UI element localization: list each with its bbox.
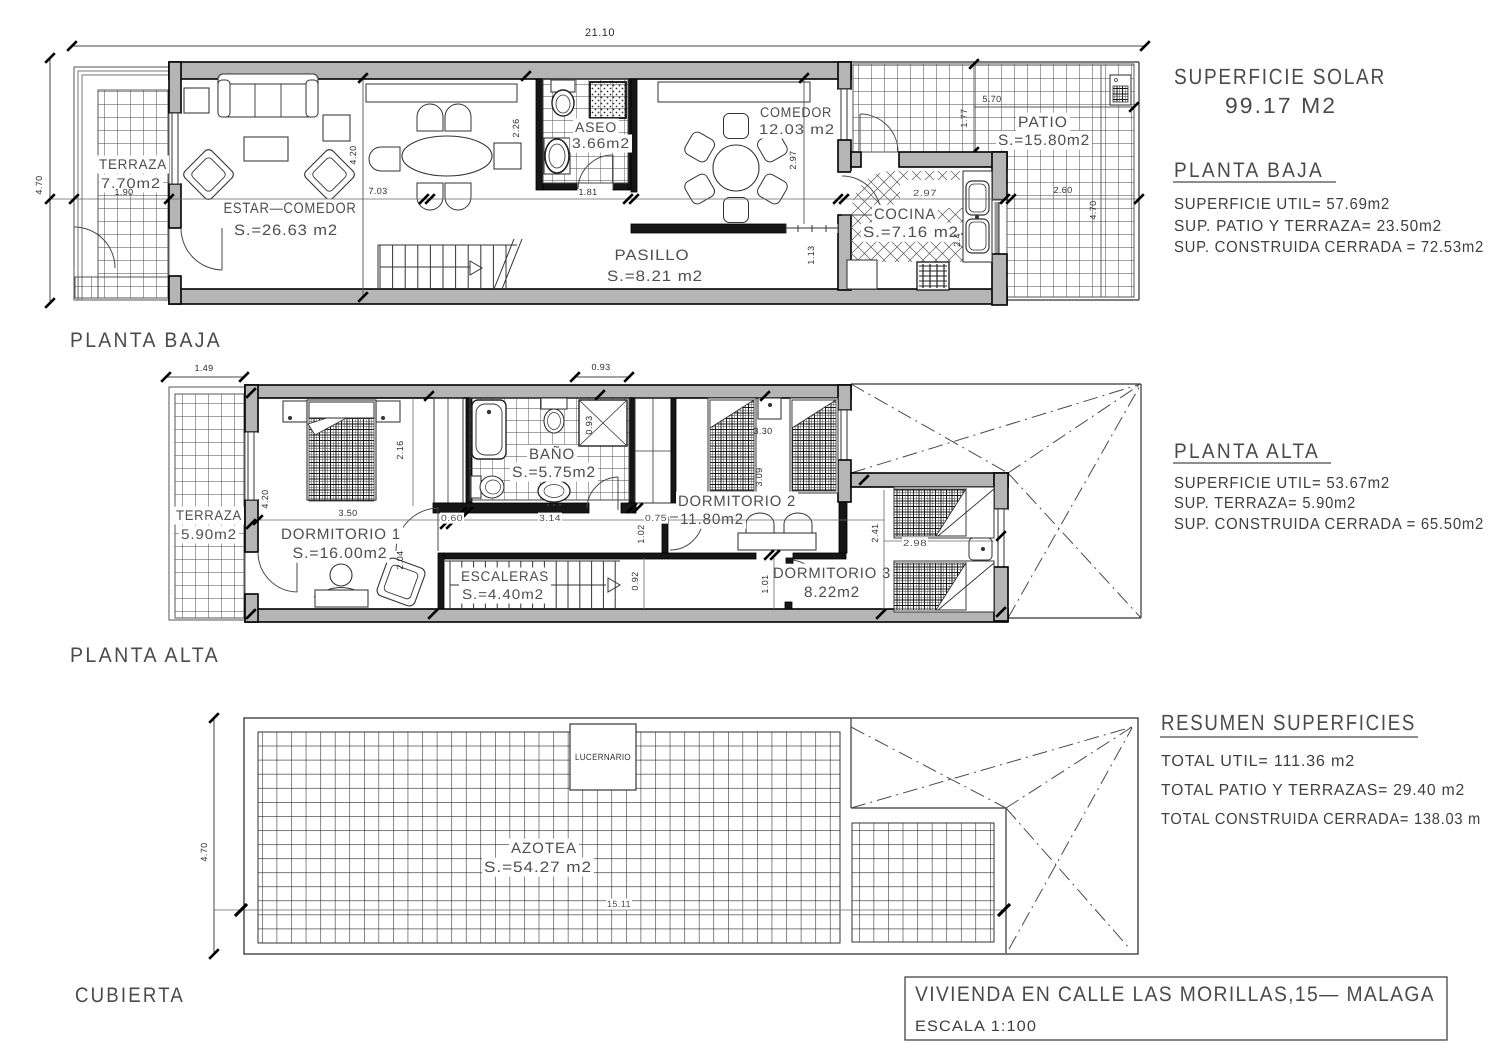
svg-text:4.70: 4.70 [1088, 200, 1098, 219]
svg-text:3.66m2: 3.66m2 [572, 135, 630, 151]
svg-text:SUP. CONSTRUIDA CERRADA =: SUP. CONSTRUIDA CERRADA = 72.53m2 [1174, 239, 1484, 256]
svg-text:TOTAL CONSTRUIDA CERRADA= 1: TOTAL CONSTRUIDA CERRADA= 138.03 m [1161, 811, 1481, 828]
svg-text:1.13: 1.13 [806, 245, 816, 264]
svg-text:4.70: 4.70 [34, 175, 44, 194]
svg-text:S.=26.63 m2: S.=26.63 m2 [234, 222, 338, 239]
svg-text:SUP. TERRAZA= 5.90m2: SUP. TERRAZA= 5.90m2 [1174, 495, 1356, 512]
svg-text:TERRAZA: TERRAZA [99, 156, 167, 172]
svg-text:4.20: 4.20 [348, 145, 358, 164]
svg-text:2.16: 2.16 [395, 440, 405, 459]
svg-text:15.11: 15.11 [607, 899, 631, 909]
svg-text:RESUMEN SUPERFICIES: RESUMEN SUPERFICIES [1161, 710, 1416, 735]
svg-text:COCINA: COCINA [874, 206, 936, 223]
svg-text:SUPERFICIE UTIL= 57.69m2: SUPERFICIE UTIL= 57.69m2 [1174, 196, 1390, 213]
svg-text:PLANTA ALTA: PLANTA ALTA [70, 644, 220, 667]
svg-text:7.03: 7.03 [368, 186, 387, 196]
svg-text:2.98: 2.98 [903, 538, 927, 548]
svg-text:BAÑO: BAÑO [529, 445, 575, 463]
svg-text:2.4: 2.4 [952, 233, 962, 247]
svg-text:2.26: 2.26 [511, 118, 521, 137]
svg-text:TOTAL UTIL= 111.36 m2: TOTAL UTIL= 111.36 m2 [1161, 753, 1355, 770]
svg-text:5.70: 5.70 [982, 94, 1001, 104]
svg-text:0.60: 0.60 [441, 513, 463, 523]
svg-text:2.41: 2.41 [870, 523, 880, 542]
svg-text:AZOTEA: AZOTEA [511, 840, 577, 857]
svg-text:TERRAZA: TERRAZA [176, 507, 242, 523]
svg-text:99.17 M2: 99.17 M2 [1225, 93, 1337, 118]
svg-text:PATIO: PATIO [1018, 114, 1068, 131]
svg-text:1.01: 1.01 [760, 574, 770, 593]
svg-text:4.70: 4.70 [199, 842, 209, 861]
svg-text:11.80m2: 11.80m2 [680, 511, 744, 528]
svg-text:0.93: 0.93 [591, 362, 610, 372]
svg-text:0.75: 0.75 [645, 513, 667, 523]
svg-text:0.92: 0.92 [630, 571, 640, 590]
svg-text:S.=7.16 m2: S.=7.16 m2 [863, 224, 959, 241]
svg-text:2.97: 2.97 [913, 188, 937, 198]
svg-text:SUP. PATIO Y TERRAZA= 23.5: SUP. PATIO Y TERRAZA= 23.50m2 [1174, 218, 1442, 235]
svg-text:ASEO: ASEO [575, 119, 617, 135]
svg-text:S.=54.27 m2: S.=54.27 m2 [484, 859, 592, 876]
svg-text:S.=5.75m2: S.=5.75m2 [512, 464, 596, 481]
svg-text:SUPERFICIE SOLAR: SUPERFICIE SOLAR [1174, 64, 1386, 89]
svg-text:4.20: 4.20 [260, 489, 270, 508]
svg-text:1.02: 1.02 [636, 524, 646, 543]
svg-text:VIVIENDA EN CALLE LAS MORI: VIVIENDA EN CALLE LAS MORILLAS,15— MALAG… [915, 983, 1435, 1006]
svg-text:S.=15.80m2: S.=15.80m2 [998, 132, 1090, 149]
svg-text:TOTAL PATIO Y TERRAZAS= 29: TOTAL PATIO Y TERRAZAS= 29.40 m2 [1161, 782, 1465, 799]
svg-text:8.22m2: 8.22m2 [804, 584, 860, 601]
svg-text:SUP. CONSTRUIDA CERRADA =: SUP. CONSTRUIDA CERRADA = 65.50m2 [1174, 516, 1484, 533]
svg-text:3.50: 3.50 [338, 508, 357, 518]
svg-text:1.81: 1.81 [578, 187, 597, 197]
svg-text:3.14: 3.14 [539, 513, 561, 523]
svg-text:PLANTA ALTA: PLANTA ALTA [1174, 440, 1320, 463]
svg-text:2.04: 2.04 [395, 550, 405, 569]
svg-text:5.90m2: 5.90m2 [181, 526, 237, 542]
svg-text:S.=4.40m2: S.=4.40m2 [462, 586, 544, 602]
svg-text:2.60: 2.60 [1053, 185, 1072, 195]
svg-text:DORMITORIO 3: DORMITORIO 3 [773, 565, 891, 582]
svg-text:ESTAR—COMEDOR: ESTAR—COMEDOR [224, 200, 357, 217]
svg-text:1.90: 1.90 [114, 187, 133, 197]
svg-text:S.=16.00m2: S.=16.00m2 [293, 545, 388, 562]
svg-text:12.03 m2: 12.03 m2 [759, 121, 835, 137]
svg-text:ESCALA 1:100: ESCALA 1:100 [915, 1018, 1037, 1035]
svg-text:LUCERNARIO: LUCERNARIO [575, 752, 631, 762]
svg-text:PASILLO: PASILLO [615, 247, 690, 264]
svg-text:0.93: 0.93 [584, 415, 594, 434]
svg-text:SUPERFICIE UTIL= 53.67m2: SUPERFICIE UTIL= 53.67m2 [1174, 475, 1390, 492]
svg-text:CUBIERTA: CUBIERTA [75, 984, 185, 1007]
svg-text:PLANTA BAJA: PLANTA BAJA [70, 329, 222, 352]
svg-text:21.10: 21.10 [585, 27, 615, 39]
svg-text:DORMITORIO 2: DORMITORIO 2 [678, 493, 796, 510]
svg-text:PLANTA BAJA: PLANTA BAJA [1174, 159, 1324, 182]
svg-text:1.49: 1.49 [194, 363, 213, 373]
svg-text:S.=8.21 m2: S.=8.21 m2 [607, 268, 703, 285]
svg-text:1.77: 1.77 [959, 108, 969, 127]
svg-text:DORMITORIO 1: DORMITORIO 1 [281, 526, 401, 543]
svg-text:3.30: 3.30 [753, 426, 772, 436]
svg-text:COMEDOR: COMEDOR [760, 104, 832, 120]
svg-text:2.97: 2.97 [788, 150, 798, 169]
svg-text:ESCALERAS: ESCALERAS [461, 568, 549, 584]
svg-text:3.09: 3.09 [754, 467, 764, 486]
